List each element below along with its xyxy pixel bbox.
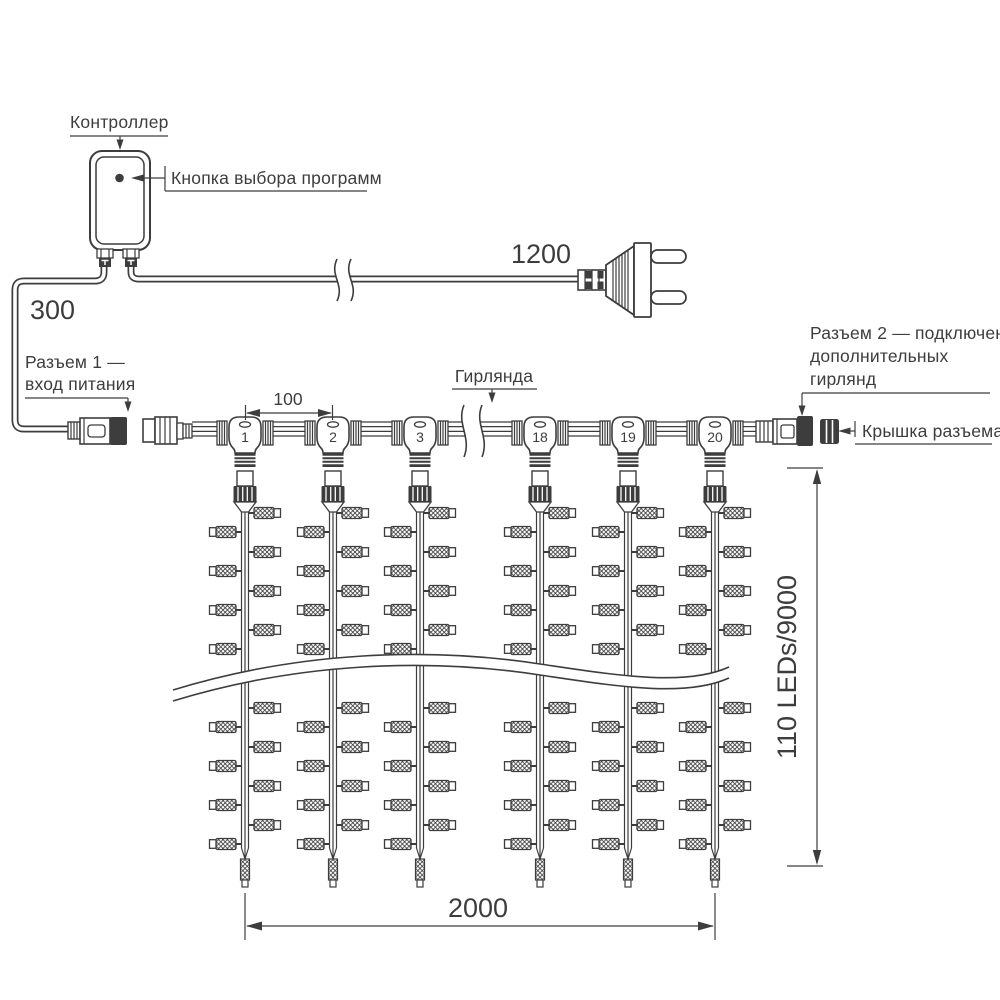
connector1-label-line2: вход питания: [25, 374, 135, 394]
connector2-label-line1: Разъем 2 — подключение: [810, 323, 1000, 343]
controller: [90, 151, 150, 267]
cap-callout: Крышка разъема: [838, 421, 1000, 444]
garland-label: Гирлянда: [455, 366, 533, 386]
curtain-break-band: [173, 654, 729, 701]
garland-break-symbol: [462, 405, 485, 457]
lead-length-label: 300: [30, 295, 75, 325]
connector-cap: [820, 419, 839, 444]
plug-pin-top: [651, 250, 686, 263]
connector2-label-line2: дополнительных: [810, 346, 949, 366]
controller-callout: Контроллер: [70, 112, 169, 150]
drop-number-1: 1: [241, 429, 249, 445]
width-dimension: 2000: [245, 893, 715, 940]
controller-label: Контроллер: [70, 112, 169, 132]
connector1-callout: Разъем 1 — вход питания: [25, 352, 135, 412]
cap-label: Крышка разъема: [862, 421, 1000, 441]
connector2-label-line3: гирлянд: [810, 369, 876, 389]
width-label: 2000: [448, 893, 508, 923]
drop-number-2: 2: [329, 429, 337, 445]
connector1-label-line1: Разъем 1 —: [25, 352, 125, 372]
connector2-callout: Разъем 2 — подключение дополнительных ги…: [799, 323, 1000, 416]
led-string-2: [298, 508, 369, 888]
extension-connector: [756, 416, 813, 446]
controller-outlet-right: [123, 249, 139, 267]
program-button-label: Кнопка выбора программ: [171, 168, 382, 188]
diagram-canvas: Контроллер Кнопка выбора программ 1200 3…: [0, 0, 1000, 1000]
garland-callout: Гирлянда: [452, 366, 537, 403]
led-string-3: [385, 508, 456, 888]
led-curtain-diagram: Контроллер Кнопка выбора программ 1200 3…: [0, 0, 1000, 1000]
lead-in-wire: [15, 266, 104, 429]
led-string-19: [593, 508, 664, 888]
height-dimension: 110 LEDs/9000: [772, 468, 823, 866]
program-button-dot: [115, 174, 124, 183]
garland-input-connector: [143, 417, 192, 444]
drop-number-20: 20: [707, 429, 723, 445]
power-plug: [578, 243, 686, 317]
drop-spacing-dimension: 100: [246, 389, 333, 420]
led-strings: [210, 508, 751, 888]
led-string-18: [505, 508, 576, 888]
power-input-connector: [68, 417, 127, 445]
plug-pin-bottom: [651, 291, 686, 304]
drop-number-18: 18: [532, 429, 548, 445]
cord-length-label: 1200: [511, 239, 571, 269]
height-label: 110 LEDs/9000: [772, 575, 802, 759]
drop-number-19: 19: [620, 429, 636, 445]
drop-number-3: 3: [416, 429, 424, 445]
led-string-1: [210, 508, 281, 888]
program-button-callout: Кнопка выбора программ: [131, 166, 382, 191]
led-string-20: [680, 508, 751, 888]
cord-break-symbol: [335, 259, 354, 301]
drop-spacing-label: 100: [273, 389, 302, 409]
controller-outlet-left: [97, 249, 113, 267]
